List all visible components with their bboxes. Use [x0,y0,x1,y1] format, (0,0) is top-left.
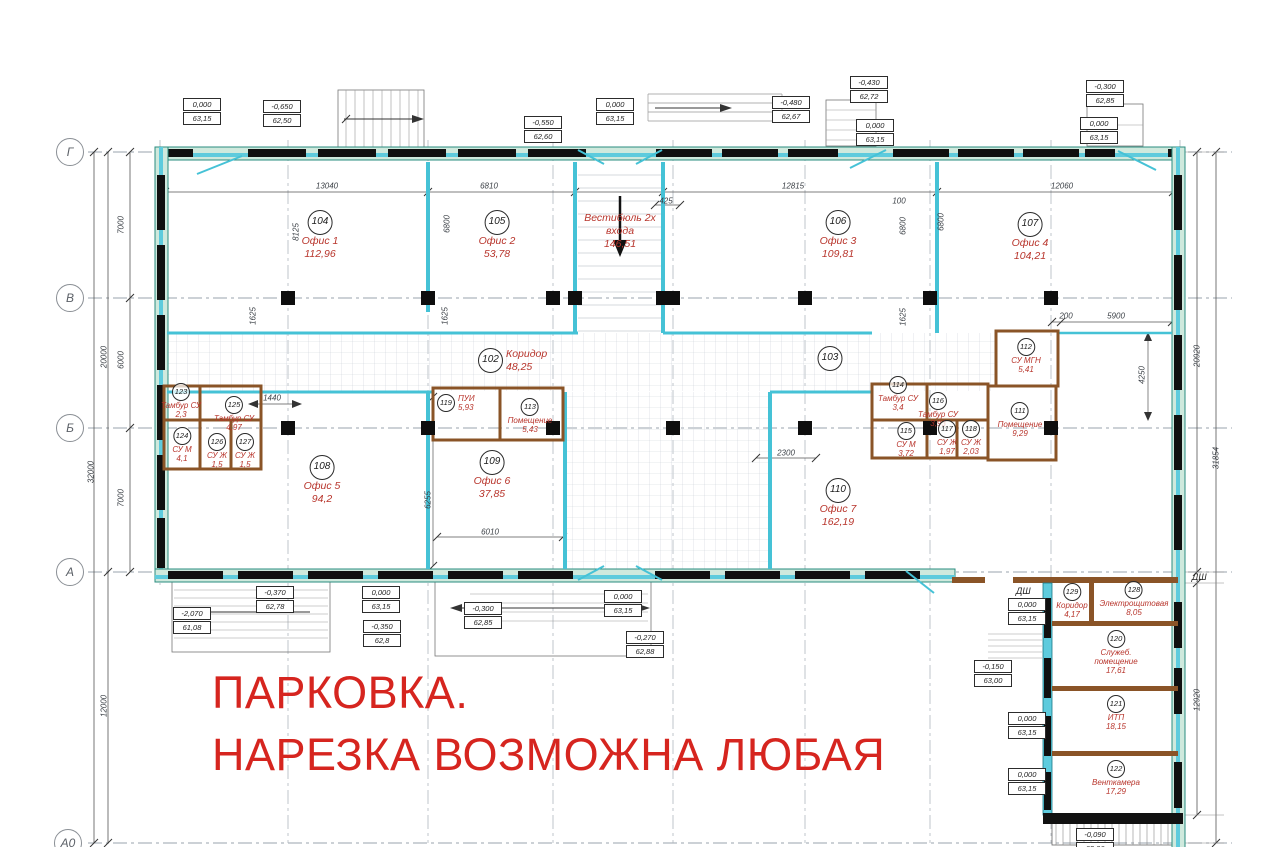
elevation-top: 0,000 [604,590,642,603]
elevation-bottom: 62,85 [1086,94,1124,107]
room-number: 105 [484,210,509,235]
elevation-top: -0,090 [1076,828,1114,841]
elevation-top: 0,000 [1008,598,1046,611]
elevation-bottom: 63,15 [1008,782,1046,795]
dimension-label: 12815 [782,182,804,191]
elevation-bottom: 63,15 [1008,726,1046,739]
room-label: 102Коридор48,25 [478,348,547,374]
elevation-top: -0,550 [524,116,562,129]
room-name: ИТП [1106,713,1126,722]
room-text: Тамбур СУ4,97 [214,414,254,432]
room-name: ПУИ [458,394,475,403]
room-area: 5,43 [508,425,553,434]
room-area: 5,41 [1011,365,1040,374]
dimension-label: 6800 [443,215,452,233]
room-label: 123Тамбур СУ2,3 [161,383,201,419]
room-number: 129 [1063,583,1081,601]
room-text: Тамбур СУ2,3 [161,401,201,419]
room-area: 4,17 [1056,610,1087,619]
elevation-top: 0,000 [1008,712,1046,725]
room-name: Тамбур СУ [161,401,201,410]
elevation-mark: 0,00063,15 [362,586,400,613]
elevation-mark: -0,55062,60 [524,116,562,143]
room-number: 122 [1107,760,1125,778]
room-name: помещение [1094,657,1137,666]
room-name: Электрощитовая [1100,599,1169,608]
elevation-top: 0,000 [1008,768,1046,781]
elevation-mark: 0,00063,15 [183,98,221,125]
room-name: СУ Ж [235,451,255,460]
grid-axis-bubble: В [56,284,84,312]
elevation-mark: -0,30062,85 [464,602,502,629]
elevation-top: -0,430 [850,76,888,89]
room-name: входа [584,225,656,238]
room-label: 125Тамбур СУ4,97 [214,396,254,432]
dimension-label: 32000 [87,461,96,483]
room-text: ИТП18,15 [1106,713,1126,731]
elevation-bottom: 63,15 [1008,612,1046,625]
elevation-mark: -0,37062,78 [256,586,294,613]
elevation-mark: -0,15063,00 [974,660,1012,687]
room-text: Электрощитовая8,05 [1100,599,1169,617]
room-number: 113 [521,398,539,416]
room-label: 104Офис 1112,96 [302,210,339,261]
room-number: 121 [1107,695,1125,713]
dimension-label: 1625 [441,307,450,325]
room-area: 1,5 [235,460,255,469]
elevation-bottom: 61,08 [173,621,211,634]
room-area: 104,21 [1012,250,1049,263]
elevation-bottom: 62,78 [256,600,294,613]
room-label: 127СУ Ж1,5 [235,433,255,469]
elevation-top: -0,650 [263,100,301,113]
elevation-top: 0,000 [596,98,634,111]
floor-plan-canvas: ГВБАА0 104Офис 1112,96105Офис 253,78Вест… [0,0,1280,847]
room-area: 109,81 [820,248,857,261]
room-number: 128 [1125,581,1143,599]
room-name: СУ М [896,440,915,449]
dimension-label: 12920 [1193,689,1202,711]
room-label: 114Тамбур СУ3,4 [878,376,918,412]
dimension-label: 6000 [117,351,126,369]
dimension-label: 6255 [424,491,433,509]
elevation-bottom: 62,85 [464,616,502,629]
room-area: 146,51 [584,238,656,251]
room-area: 2,03 [961,447,981,456]
room-name: СУ Ж [937,438,957,447]
room-label: Вестибюль 2хвхода146,51 [584,212,656,251]
parking-note-line2: НАРЕЗКА ВОЗМОЖНА ЛЮБАЯ [212,724,885,786]
elevation-bottom: 63,15 [596,112,634,125]
dimension-label: 1625 [249,307,258,325]
room-name: Служеб. [1094,648,1137,657]
parking-note: ПАРКОВКА. НАРЕЗКА ВОЗМОЖНА ЛЮБАЯ [212,662,885,786]
room-text: Офис 253,78 [479,235,516,261]
room-number: 116 [929,392,947,410]
room-name: Венткамера [1092,778,1140,787]
room-name: СУ М [172,445,191,454]
elevation-bottom: 63,15 [1080,131,1118,144]
room-number: 104 [307,210,332,235]
elevation-bottom: 62,8 [363,634,401,647]
room-name: Помещение [508,416,553,425]
room-text: СУ Ж1,5 [235,451,255,469]
room-label: 129Коридор4,17 [1056,583,1087,619]
room-area: 1,5 [207,460,227,469]
room-text: Тамбур СУ3,4 [878,394,918,412]
room-area: 94,2 [304,493,341,506]
elevation-mark: -0,65062,50 [263,100,301,127]
elevation-top: 0,000 [1080,117,1118,130]
room-label: 103 [818,346,843,371]
elevation-bottom: 63,15 [362,600,400,613]
room-text: СУ МГН5,41 [1011,356,1040,374]
elevation-bottom: 63,15 [183,112,221,125]
room-name: Коридор [506,348,547,361]
room-label: 124СУ М4,1 [172,427,191,463]
elevation-bottom: 62,88 [626,645,664,658]
elevation-top: -0,270 [626,631,664,644]
dimension-label: 6810 [480,182,498,191]
room-area: 53,78 [479,248,516,261]
elevation-mark: -0,27062,88 [626,631,664,658]
room-number: 127 [236,433,254,451]
room-number: 123 [172,383,190,401]
dimension-label: 1440 [263,394,281,403]
room-number: 118 [962,420,980,438]
room-name: Офис 7 [820,503,857,516]
elevation-bottom: 63,00 [974,674,1012,687]
elevation-bottom: 63,06 [1076,842,1114,847]
room-area: 162,19 [820,516,857,529]
room-name: Тамбур СУ [918,410,958,419]
room-name: СУ Ж [207,451,227,460]
room-text: Офис 3109,81 [820,235,857,261]
room-area: 3,4 [878,403,918,412]
parking-note-line1: ПАРКОВКА. [212,662,885,724]
room-text: Венткамера17,29 [1092,778,1140,796]
room-text: СУ Ж1,97 [937,438,957,456]
dimension-label: 4250 [1138,366,1147,384]
elevation-top: -0,480 [772,96,810,109]
dimension-label: 7000 [117,216,126,234]
room-number: 109 [479,450,504,475]
grid-axis-bubble: А [56,558,84,586]
elevation-mark: 0,00063,15 [1008,712,1046,739]
room-text: Офис 7162,19 [820,503,857,529]
room-text: Помещение5,43 [508,416,553,434]
room-text: Служеб.помещение17,61 [1094,648,1137,676]
elevation-mark: -0,48062,67 [772,96,810,123]
room-label: 106Офис 3109,81 [820,210,857,261]
elevation-top: -0,150 [974,660,1012,673]
elevation-top: -0,300 [1086,80,1124,93]
room-name: Помещение [998,420,1043,429]
dimension-label: 8125 [292,223,301,241]
room-area: 3,72 [896,449,915,458]
elevation-mark: -0,30062,85 [1086,80,1124,107]
elevation-mark: 0,00063,15 [1008,768,1046,795]
room-label: 117СУ Ж1,97 [937,420,957,456]
room-name: Офис 3 [820,235,857,248]
room-label: 111Помещение9,29 [998,402,1043,438]
room-number: 107 [1017,212,1042,237]
room-area: 9,29 [998,429,1043,438]
room-area: 4,1 [172,454,191,463]
room-area: 112,96 [302,248,339,261]
room-text: Офис 594,2 [304,480,341,506]
annotation-label: ДШ [1192,572,1207,582]
room-label: 119ПУИ5,93 [437,394,475,412]
dimension-label: 6010 [481,528,499,537]
room-label: 109Офис 637,85 [474,450,511,501]
dimension-label: 425 [659,197,672,206]
room-area: 48,25 [506,361,547,374]
elevation-mark: -0,35062,8 [363,620,401,647]
elevation-mark: -0,43062,72 [850,76,888,103]
room-name: Офис 4 [1012,237,1049,250]
room-area: 18,15 [1106,722,1126,731]
elevation-bottom: 63,15 [856,133,894,146]
elevation-bottom: 63,15 [604,604,642,617]
room-number: 126 [208,433,226,451]
dimension-label: 6800 [899,217,908,235]
room-area: 17,61 [1094,666,1137,675]
room-label: 120Служеб.помещение17,61 [1094,630,1137,676]
elevation-top: -0,370 [256,586,294,599]
elevation-bottom: 62,60 [524,130,562,143]
room-name: Тамбур СУ [878,394,918,403]
room-text: ПУИ5,93 [458,394,475,412]
room-number: 110 [825,478,850,503]
room-text: Офис 4104,21 [1012,237,1049,263]
room-text: СУ М3,72 [896,440,915,458]
room-number: 102 [478,348,503,373]
room-text: Коридор48,25 [506,348,547,374]
dimension-label: 2300 [777,449,795,458]
dimension-label: 12000 [100,695,109,717]
room-name: Офис 5 [304,480,341,493]
elevation-bottom: 62,72 [850,90,888,103]
elevation-top: 0,000 [362,586,400,599]
dimension-label: 5900 [1107,312,1125,321]
elevation-mark: 0,00063,15 [596,98,634,125]
dimension-label: 1625 [899,308,908,326]
elevation-mark: 0,00063,15 [856,119,894,146]
room-label: 108Офис 594,2 [304,455,341,506]
room-area: 37,85 [474,488,511,501]
elevation-bottom: 62,50 [263,114,301,127]
room-name: СУ МГН [1011,356,1040,365]
room-label: 118СУ Ж2,03 [961,420,981,456]
room-name: Тамбур СУ [214,414,254,423]
dimension-label: 6800 [937,213,946,231]
room-text: Помещение9,29 [998,420,1043,438]
room-number: 119 [437,394,455,412]
room-label: 115СУ М3,72 [896,422,915,458]
room-text: Вестибюль 2хвхода146,51 [584,212,656,251]
room-number: 125 [225,396,243,414]
elevation-mark: 0,00063,15 [604,590,642,617]
room-label: 128Электрощитовая8,05 [1100,581,1169,617]
elevation-mark: 0,00063,15 [1080,117,1118,144]
elevation-top: -0,300 [464,602,502,615]
elevation-mark: -0,09063,06 [1076,828,1114,847]
room-text: СУ Ж2,03 [961,438,981,456]
room-number: 120 [1107,630,1125,648]
dimension-label: 20000 [100,346,109,368]
elevation-top: 0,000 [183,98,221,111]
room-text: СУ М4,1 [172,445,191,463]
room-number: 111 [1011,402,1029,420]
room-area: 4,97 [214,423,254,432]
room-number: 108 [309,455,334,480]
room-name: Офис 1 [302,235,339,248]
elevation-top: 0,000 [856,119,894,132]
room-label: 107Офис 4104,21 [1012,212,1049,263]
room-area: 2,3 [161,410,201,419]
room-area: 5,93 [458,403,475,412]
room-number: 103 [818,346,843,371]
dimension-label: 7000 [117,489,126,507]
dimension-label: 12060 [1051,182,1073,191]
room-name: Офис 2 [479,235,516,248]
room-label: 122Венткамера17,29 [1092,760,1140,796]
elevation-top: -0,350 [363,620,401,633]
room-name: Офис 6 [474,475,511,488]
room-label: 110Офис 7162,19 [820,478,857,529]
room-number: 115 [897,422,915,440]
room-text: Офис 1112,96 [302,235,339,261]
room-label: 126СУ Ж1,5 [207,433,227,469]
room-name: Коридор [1056,601,1087,610]
room-number: 106 [825,210,850,235]
room-name: СУ Ж [961,438,981,447]
grid-axis-bubble: Б [56,414,84,442]
dimension-label: 13040 [316,182,338,191]
dimension-label: 20920 [1193,345,1202,367]
room-number: 117 [938,420,956,438]
room-area: 17,29 [1092,787,1140,796]
grid-axis-bubble: Г [56,138,84,166]
room-number: 112 [1017,338,1035,356]
room-text: Офис 637,85 [474,475,511,501]
room-number: 124 [173,427,191,445]
elevation-bottom: 62,67 [772,110,810,123]
dimension-label: 200 [1059,312,1072,321]
room-number: 114 [889,376,907,394]
room-area: 1,97 [937,447,957,456]
dimension-label: 100 [892,197,905,206]
room-label: 121ИТП18,15 [1106,695,1126,731]
elevation-mark: -2,07061,08 [173,607,211,634]
room-label: 105Офис 253,78 [479,210,516,261]
room-label: 112СУ МГН5,41 [1011,338,1040,374]
elevation-top: -2,070 [173,607,211,620]
room-text: СУ Ж1,5 [207,451,227,469]
room-area: 8,05 [1100,608,1169,617]
annotation-label: ДШ [1016,586,1031,596]
elevation-mark: 0,00063,15 [1008,598,1046,625]
room-label: 113Помещение5,43 [508,398,553,434]
room-name: Вестибюль 2х [584,212,656,225]
dimension-label: 31854 [1212,447,1221,469]
room-text: Коридор4,17 [1056,601,1087,619]
